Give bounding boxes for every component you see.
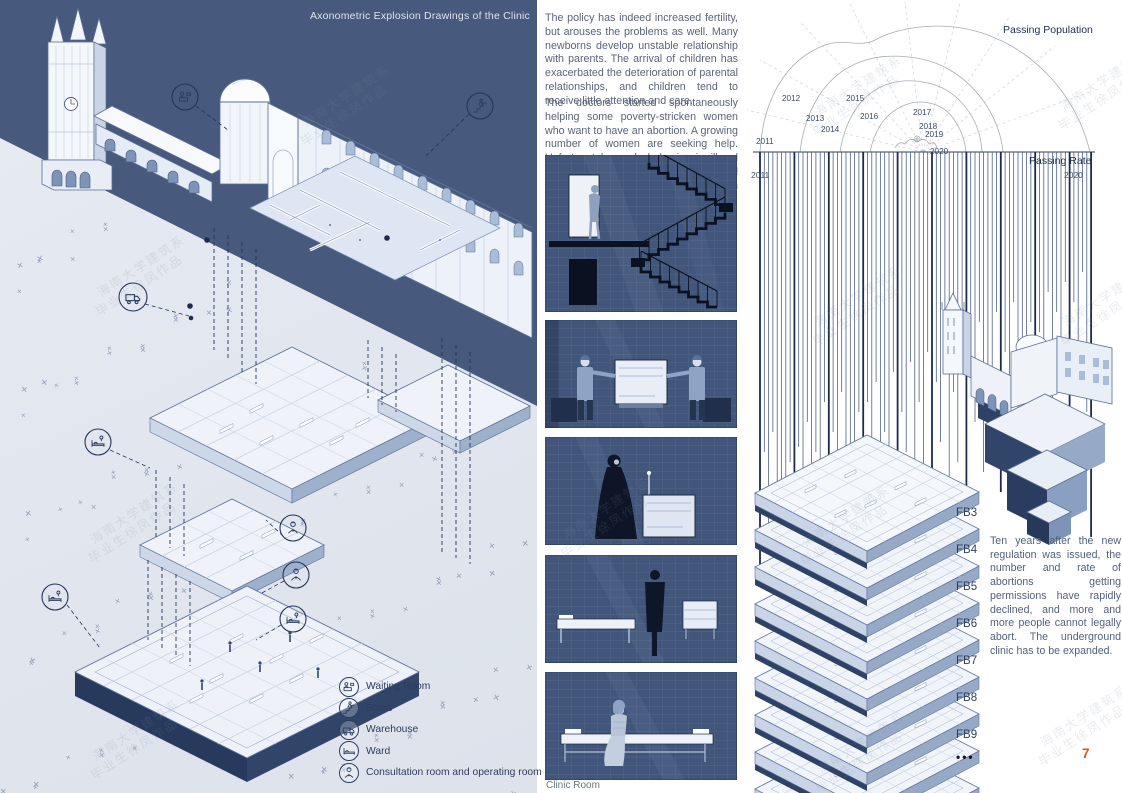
year-label: 2020	[930, 147, 948, 156]
legend-label: Ward	[366, 746, 390, 757]
equipment-transport-scene	[545, 320, 737, 428]
consultation-icon	[339, 763, 359, 783]
legend-item: Waiting Room	[339, 676, 542, 698]
paragraph-policy: The policy has indeed increased fertilit…	[545, 12, 738, 109]
axonometric-explosion-drawing	[0, 0, 537, 793]
year-label: 2016	[860, 112, 878, 121]
floor-label: FB4	[956, 544, 977, 556]
page-number: 7	[1082, 746, 1090, 761]
legend-label: Warehouse	[366, 724, 418, 735]
waiting-room-icon	[339, 677, 359, 697]
ward-icon	[339, 741, 359, 761]
examination-scene	[545, 672, 737, 780]
year-label: 2012	[782, 94, 800, 103]
legend-label: Stairs	[366, 703, 392, 714]
warehouse-icon	[339, 720, 359, 740]
presentation-board: ××××××××××××××××××××××××××××××××××××××××…	[0, 0, 1122, 793]
consultation-scene	[545, 555, 737, 663]
middle-column: The policy has indeed increased fertilit…	[545, 0, 741, 793]
waiting-room-icon	[172, 84, 198, 110]
rate-end-year: 2020	[1064, 170, 1083, 180]
year-label: 2011	[756, 137, 774, 146]
year-label: 2014	[821, 125, 839, 134]
year-label: 2017	[913, 108, 931, 117]
page-title: Axonometric Explosion Drawings of the Cl…	[310, 10, 530, 22]
stairs-icon	[467, 93, 493, 119]
clock-tower	[42, 8, 112, 190]
cloaked-visitor-scene	[545, 437, 737, 545]
right-page: Passing Population 201120122013201420152…	[745, 0, 1122, 793]
stairwell-scene	[545, 155, 737, 312]
year-label: 2013	[806, 114, 824, 123]
floor-label: FB7	[956, 655, 977, 667]
ward-icon	[85, 429, 111, 455]
legend: Waiting RoomStairsWarehouseWardConsultat…	[339, 676, 542, 784]
left-page: ××××××××××××××××××××××××××××××××××××××××…	[0, 0, 537, 793]
year-label: 2019	[925, 130, 943, 139]
floor-label: FB9	[956, 729, 977, 741]
legend-item: Ward	[339, 741, 542, 763]
passing-rate-title: Passing Rate	[1029, 155, 1091, 167]
rate-start-year: 2011	[751, 170, 769, 180]
floor-label: FB3	[956, 507, 977, 519]
warehouse-icon	[119, 283, 147, 311]
clinic-building	[42, 8, 532, 338]
floor-more-label: •••	[956, 750, 975, 764]
arcade-wing	[94, 106, 230, 202]
floor-label: FB6	[956, 618, 977, 630]
floor-plate-stack	[755, 435, 979, 793]
floor-plate-upper	[150, 347, 530, 503]
dome-apse	[220, 79, 270, 184]
floor-label: FB5	[956, 581, 977, 593]
floor-plate-middle	[140, 499, 324, 603]
stairs-icon	[339, 698, 359, 718]
legend-item: Warehouse	[339, 719, 542, 741]
floor-label: FB8	[956, 692, 977, 704]
clinic-room-caption: Clinic Room	[546, 780, 600, 791]
passing-population-title: Passing Population	[1003, 24, 1093, 36]
paragraph-regulation: Ten years after the new regulation was i…	[990, 535, 1121, 658]
legend-item: Consultation room and operating room	[339, 762, 542, 784]
ward-icon	[42, 584, 68, 610]
right-diagrams	[745, 0, 1122, 793]
legend-label: Consultation room and operating room	[366, 767, 542, 778]
legend-label: Waiting Room	[366, 681, 430, 692]
legend-item: Stairs	[339, 698, 542, 720]
year-label: 2015	[846, 94, 864, 103]
